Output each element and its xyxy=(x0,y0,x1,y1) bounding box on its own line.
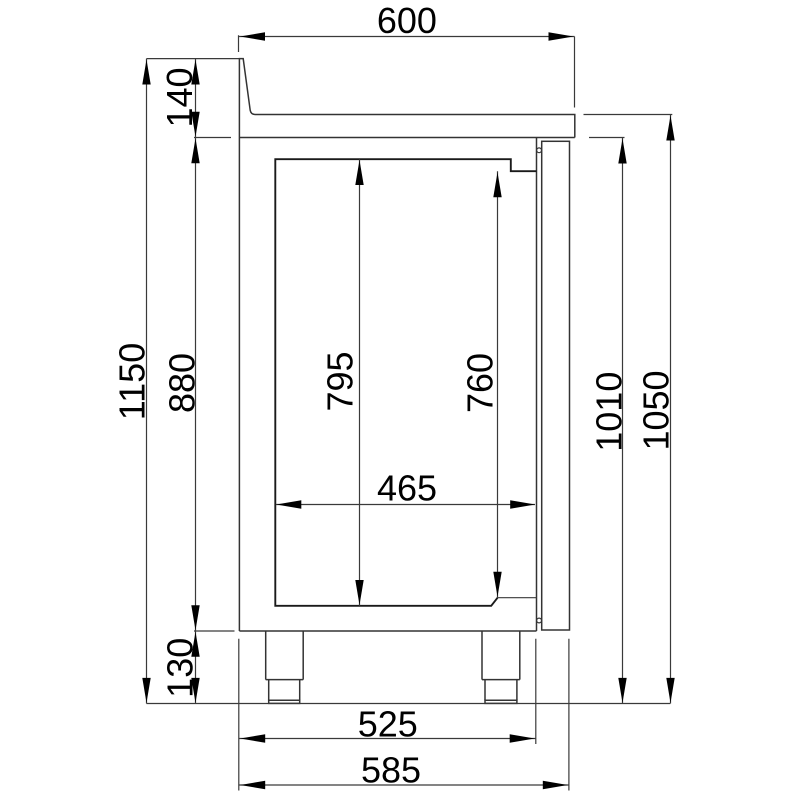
svg-text:1010: 1010 xyxy=(588,372,629,452)
svg-text:585: 585 xyxy=(361,750,421,791)
svg-text:140: 140 xyxy=(159,67,200,127)
svg-text:760: 760 xyxy=(459,353,500,413)
svg-text:525: 525 xyxy=(358,703,418,744)
svg-text:130: 130 xyxy=(160,638,201,698)
svg-text:1150: 1150 xyxy=(111,343,152,420)
svg-text:880: 880 xyxy=(162,353,203,413)
svg-text:600: 600 xyxy=(377,0,437,41)
svg-text:465: 465 xyxy=(377,468,437,509)
svg-text:1050: 1050 xyxy=(636,370,677,450)
svg-text:795: 795 xyxy=(319,351,360,411)
